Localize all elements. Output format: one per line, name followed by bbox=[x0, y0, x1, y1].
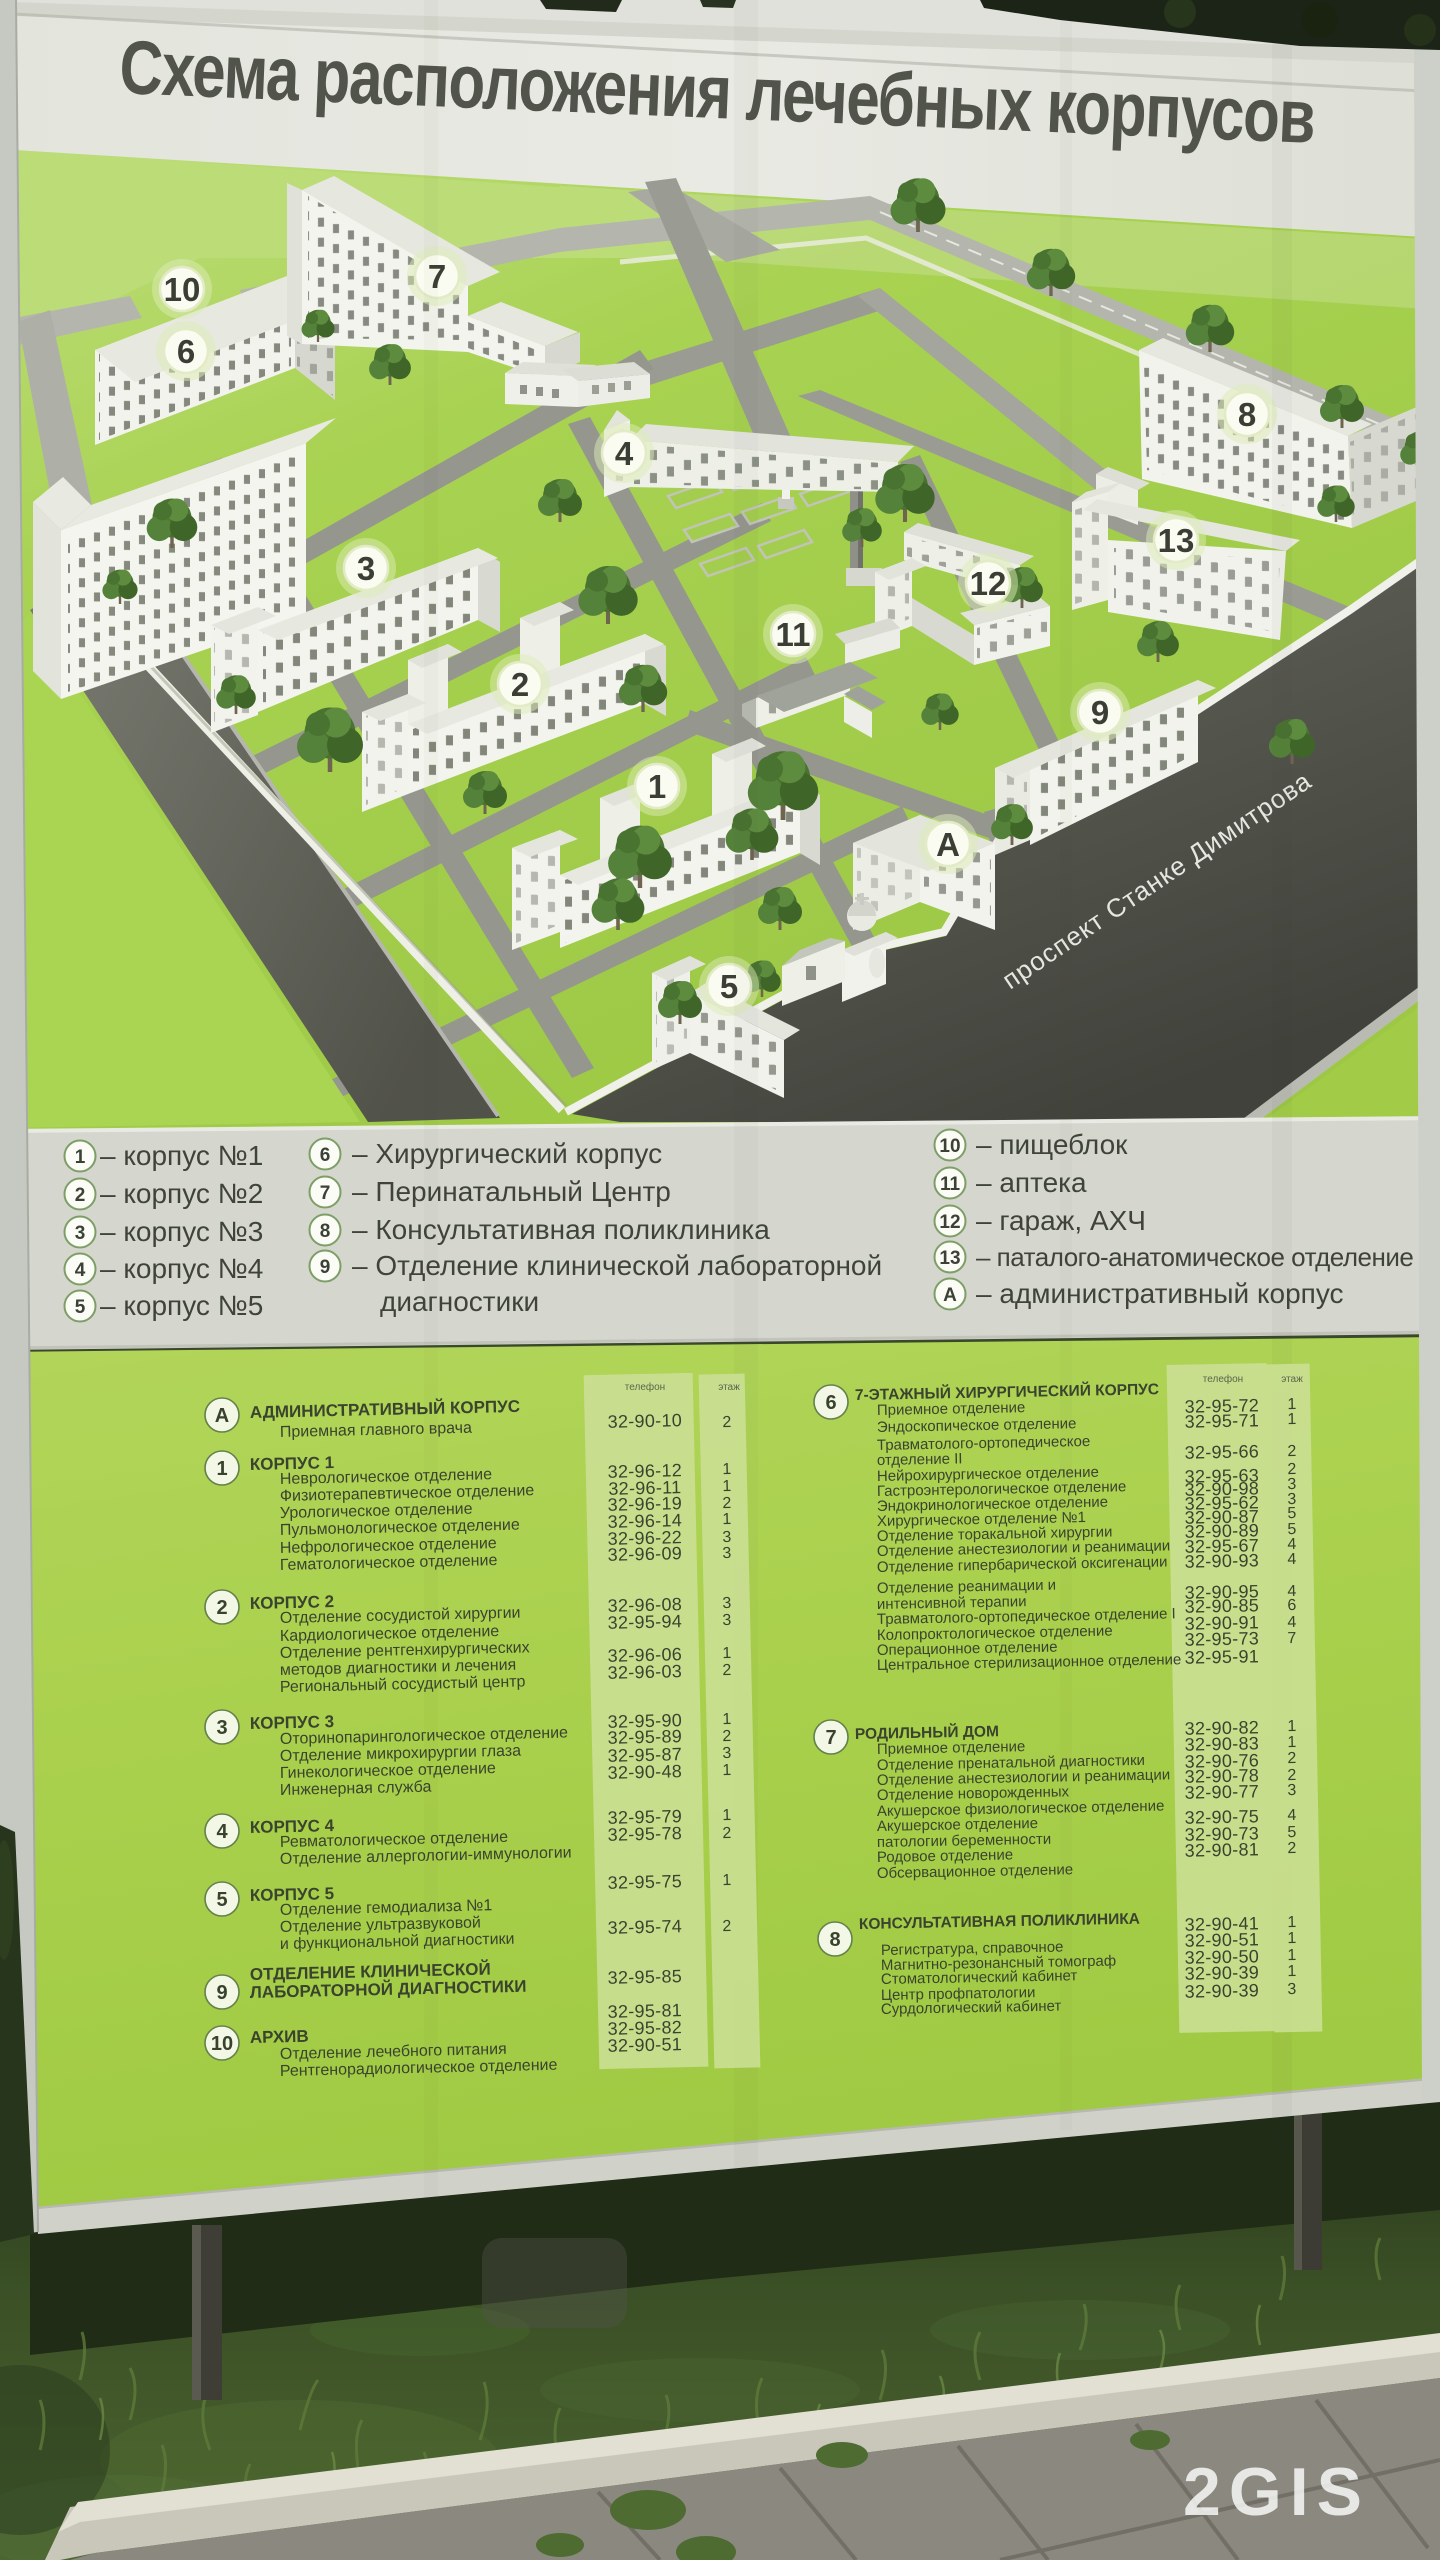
svg-text:1: 1 bbox=[722, 1807, 731, 1824]
svg-text:9: 9 bbox=[216, 1982, 227, 2004]
svg-text:11: 11 bbox=[776, 616, 811, 653]
svg-text:32-95-85: 32-95-85 bbox=[607, 1966, 682, 1988]
svg-text:9: 9 bbox=[1091, 694, 1109, 731]
svg-text:12: 12 bbox=[970, 565, 1007, 602]
svg-text:7: 7 bbox=[320, 1183, 331, 1204]
svg-text:Сурдологический кабинет: Сурдологический кабинет bbox=[881, 1998, 1062, 2018]
svg-text:телефон: телефон bbox=[1203, 1373, 1243, 1385]
svg-text:32-96-03: 32-96-03 bbox=[607, 1661, 682, 1683]
svg-text:32-95-78: 32-95-78 bbox=[607, 1823, 682, 1845]
svg-text:32-90-39: 32-90-39 bbox=[1184, 1980, 1259, 2001]
svg-text:2: 2 bbox=[216, 1597, 227, 1619]
svg-text:32-96-09: 32-96-09 bbox=[607, 1543, 682, 1565]
svg-text:32-95-74: 32-95-74 bbox=[607, 1916, 682, 1938]
svg-text:32-90-77: 32-90-77 bbox=[1184, 1781, 1259, 1802]
svg-text:– корпус №2: – корпус №2 bbox=[100, 1178, 263, 1209]
svg-text:2: 2 bbox=[511, 666, 529, 703]
svg-text:– административный корпус: – административный корпус bbox=[976, 1278, 1344, 1309]
svg-text:Инженерная служба: Инженерная служба bbox=[280, 1779, 432, 1799]
svg-text:5: 5 bbox=[216, 1889, 227, 1911]
svg-text:А: А bbox=[215, 1405, 229, 1427]
svg-text:12: 12 bbox=[939, 1212, 960, 1233]
svg-text:11: 11 bbox=[940, 1174, 961, 1195]
svg-text:32-90-51: 32-90-51 bbox=[607, 2034, 682, 2056]
svg-text:1: 1 bbox=[648, 768, 666, 805]
svg-text:32-90-93: 32-90-93 bbox=[1184, 1550, 1259, 1571]
svg-text:1: 1 bbox=[216, 1458, 227, 1480]
svg-text:A: A bbox=[943, 1285, 957, 1306]
svg-text:1: 1 bbox=[722, 1461, 731, 1478]
svg-text:32-90-48: 32-90-48 bbox=[607, 1761, 682, 1783]
svg-text:1: 1 bbox=[1287, 1947, 1296, 1964]
svg-text:2: 2 bbox=[722, 1918, 731, 1935]
svg-text:32-95-75: 32-95-75 bbox=[607, 1871, 682, 1893]
svg-text:4: 4 bbox=[1287, 1614, 1296, 1631]
svg-text:6: 6 bbox=[320, 1145, 331, 1166]
svg-text:2: 2 bbox=[722, 1825, 731, 1842]
svg-text:32-90-81: 32-90-81 bbox=[1184, 1839, 1259, 1860]
svg-text:32-95-66: 32-95-66 bbox=[1184, 1441, 1259, 1462]
svg-text:7: 7 bbox=[1287, 1630, 1296, 1647]
svg-text:1: 1 bbox=[1287, 1914, 1296, 1931]
svg-text:2GIS: 2GIS bbox=[1183, 2454, 1370, 2530]
svg-text:32-90-10: 32-90-10 bbox=[607, 1410, 682, 1432]
svg-text:3: 3 bbox=[722, 1595, 731, 1612]
svg-text:4: 4 bbox=[216, 1821, 228, 1843]
svg-text:– Отделение клинической лабора: – Отделение клинической лабораторной bbox=[352, 1250, 882, 1281]
svg-text:8: 8 bbox=[320, 1221, 331, 1242]
svg-text:10: 10 bbox=[211, 2033, 233, 2055]
svg-text:1: 1 bbox=[722, 1645, 731, 1662]
svg-text:1: 1 bbox=[722, 1478, 731, 1495]
svg-text:– паталого-анатомическое отдел: – паталого-анатомическое отделение bbox=[976, 1242, 1413, 1272]
svg-text:2: 2 bbox=[1287, 1840, 1296, 1857]
svg-text:4: 4 bbox=[615, 435, 634, 472]
svg-text:6: 6 bbox=[1287, 1597, 1296, 1614]
svg-text:– корпус №3: – корпус №3 bbox=[100, 1216, 263, 1247]
svg-text:3: 3 bbox=[722, 1745, 731, 1762]
svg-text:– гараж, АХЧ: – гараж, АХЧ bbox=[976, 1205, 1146, 1236]
svg-text:2: 2 bbox=[1287, 1443, 1296, 1460]
svg-text:2: 2 bbox=[722, 1414, 731, 1431]
svg-text:– Перинатальный Центр: – Перинатальный Центр bbox=[352, 1176, 671, 1207]
svg-text:9: 9 bbox=[320, 1257, 331, 1278]
svg-text:телефон: телефон bbox=[625, 1381, 665, 1393]
svg-text:4: 4 bbox=[1287, 1807, 1296, 1824]
svg-text:1: 1 bbox=[722, 1711, 731, 1728]
svg-text:32-95-94: 32-95-94 bbox=[607, 1611, 682, 1633]
svg-text:2: 2 bbox=[722, 1662, 731, 1679]
svg-text:– корпус №5: – корпус №5 bbox=[100, 1290, 263, 1321]
svg-text:A: A bbox=[936, 826, 960, 863]
svg-text:этаж: этаж bbox=[718, 1382, 740, 1393]
svg-text:3: 3 bbox=[75, 1223, 86, 1244]
svg-text:2: 2 bbox=[722, 1495, 731, 1512]
svg-text:10: 10 bbox=[939, 1136, 960, 1157]
svg-text:5: 5 bbox=[1287, 1505, 1296, 1522]
svg-text:5: 5 bbox=[1287, 1824, 1296, 1841]
svg-text:1: 1 bbox=[1287, 1930, 1296, 1947]
svg-text:4: 4 bbox=[75, 1260, 86, 1281]
svg-text:32-95-71: 32-95-71 bbox=[1184, 1410, 1259, 1431]
svg-text:– Хирургический корпус: – Хирургический корпус bbox=[352, 1138, 662, 1169]
svg-text:3: 3 bbox=[722, 1612, 731, 1629]
svg-text:1: 1 bbox=[722, 1872, 731, 1889]
svg-text:АРХИВ: АРХИВ bbox=[250, 2027, 309, 2047]
svg-text:7: 7 bbox=[825, 1727, 836, 1749]
svg-text:диагностики: диагностики bbox=[380, 1286, 539, 1317]
svg-text:6: 6 bbox=[177, 333, 195, 370]
svg-text:3: 3 bbox=[216, 1717, 227, 1739]
svg-text:1: 1 bbox=[75, 1147, 86, 1168]
svg-text:13: 13 bbox=[1158, 522, 1195, 559]
svg-text:1: 1 bbox=[1287, 1734, 1296, 1751]
svg-text:3: 3 bbox=[1287, 1782, 1296, 1799]
svg-text:3: 3 bbox=[357, 550, 375, 587]
svg-text:1: 1 bbox=[722, 1511, 731, 1528]
svg-text:8: 8 bbox=[1238, 396, 1256, 433]
svg-text:– корпус №4: – корпус №4 bbox=[100, 1253, 263, 1284]
svg-text:1: 1 bbox=[1287, 1411, 1296, 1428]
svg-text:– корпус №1: – корпус №1 bbox=[100, 1140, 263, 1171]
svg-text:5: 5 bbox=[75, 1297, 86, 1318]
svg-text:– аптека: – аптека bbox=[976, 1167, 1087, 1198]
svg-text:– пищеблок: – пищеблок bbox=[976, 1129, 1128, 1160]
svg-text:3: 3 bbox=[722, 1529, 731, 1546]
svg-text:4: 4 bbox=[1287, 1551, 1296, 1568]
svg-text:3: 3 bbox=[722, 1545, 731, 1562]
svg-text:2: 2 bbox=[1287, 1750, 1296, 1767]
svg-text:32-95-91: 32-95-91 bbox=[1184, 1646, 1259, 1667]
svg-text:2: 2 bbox=[722, 1728, 731, 1745]
svg-text:1: 1 bbox=[722, 1762, 731, 1779]
svg-text:8: 8 bbox=[829, 1929, 840, 1951]
svg-text:1: 1 bbox=[1287, 1718, 1296, 1735]
svg-text:6: 6 bbox=[825, 1392, 836, 1414]
svg-text:1: 1 bbox=[1287, 1963, 1296, 1980]
svg-text:3: 3 bbox=[1287, 1981, 1296, 1998]
svg-text:10: 10 bbox=[164, 271, 201, 308]
svg-text:– Консультативная поликлиника: – Консультативная поликлиника bbox=[352, 1214, 770, 1245]
svg-text:13: 13 bbox=[939, 1248, 960, 1269]
svg-text:2: 2 bbox=[75, 1185, 86, 1206]
svg-text:этаж: этаж bbox=[1281, 1374, 1303, 1385]
